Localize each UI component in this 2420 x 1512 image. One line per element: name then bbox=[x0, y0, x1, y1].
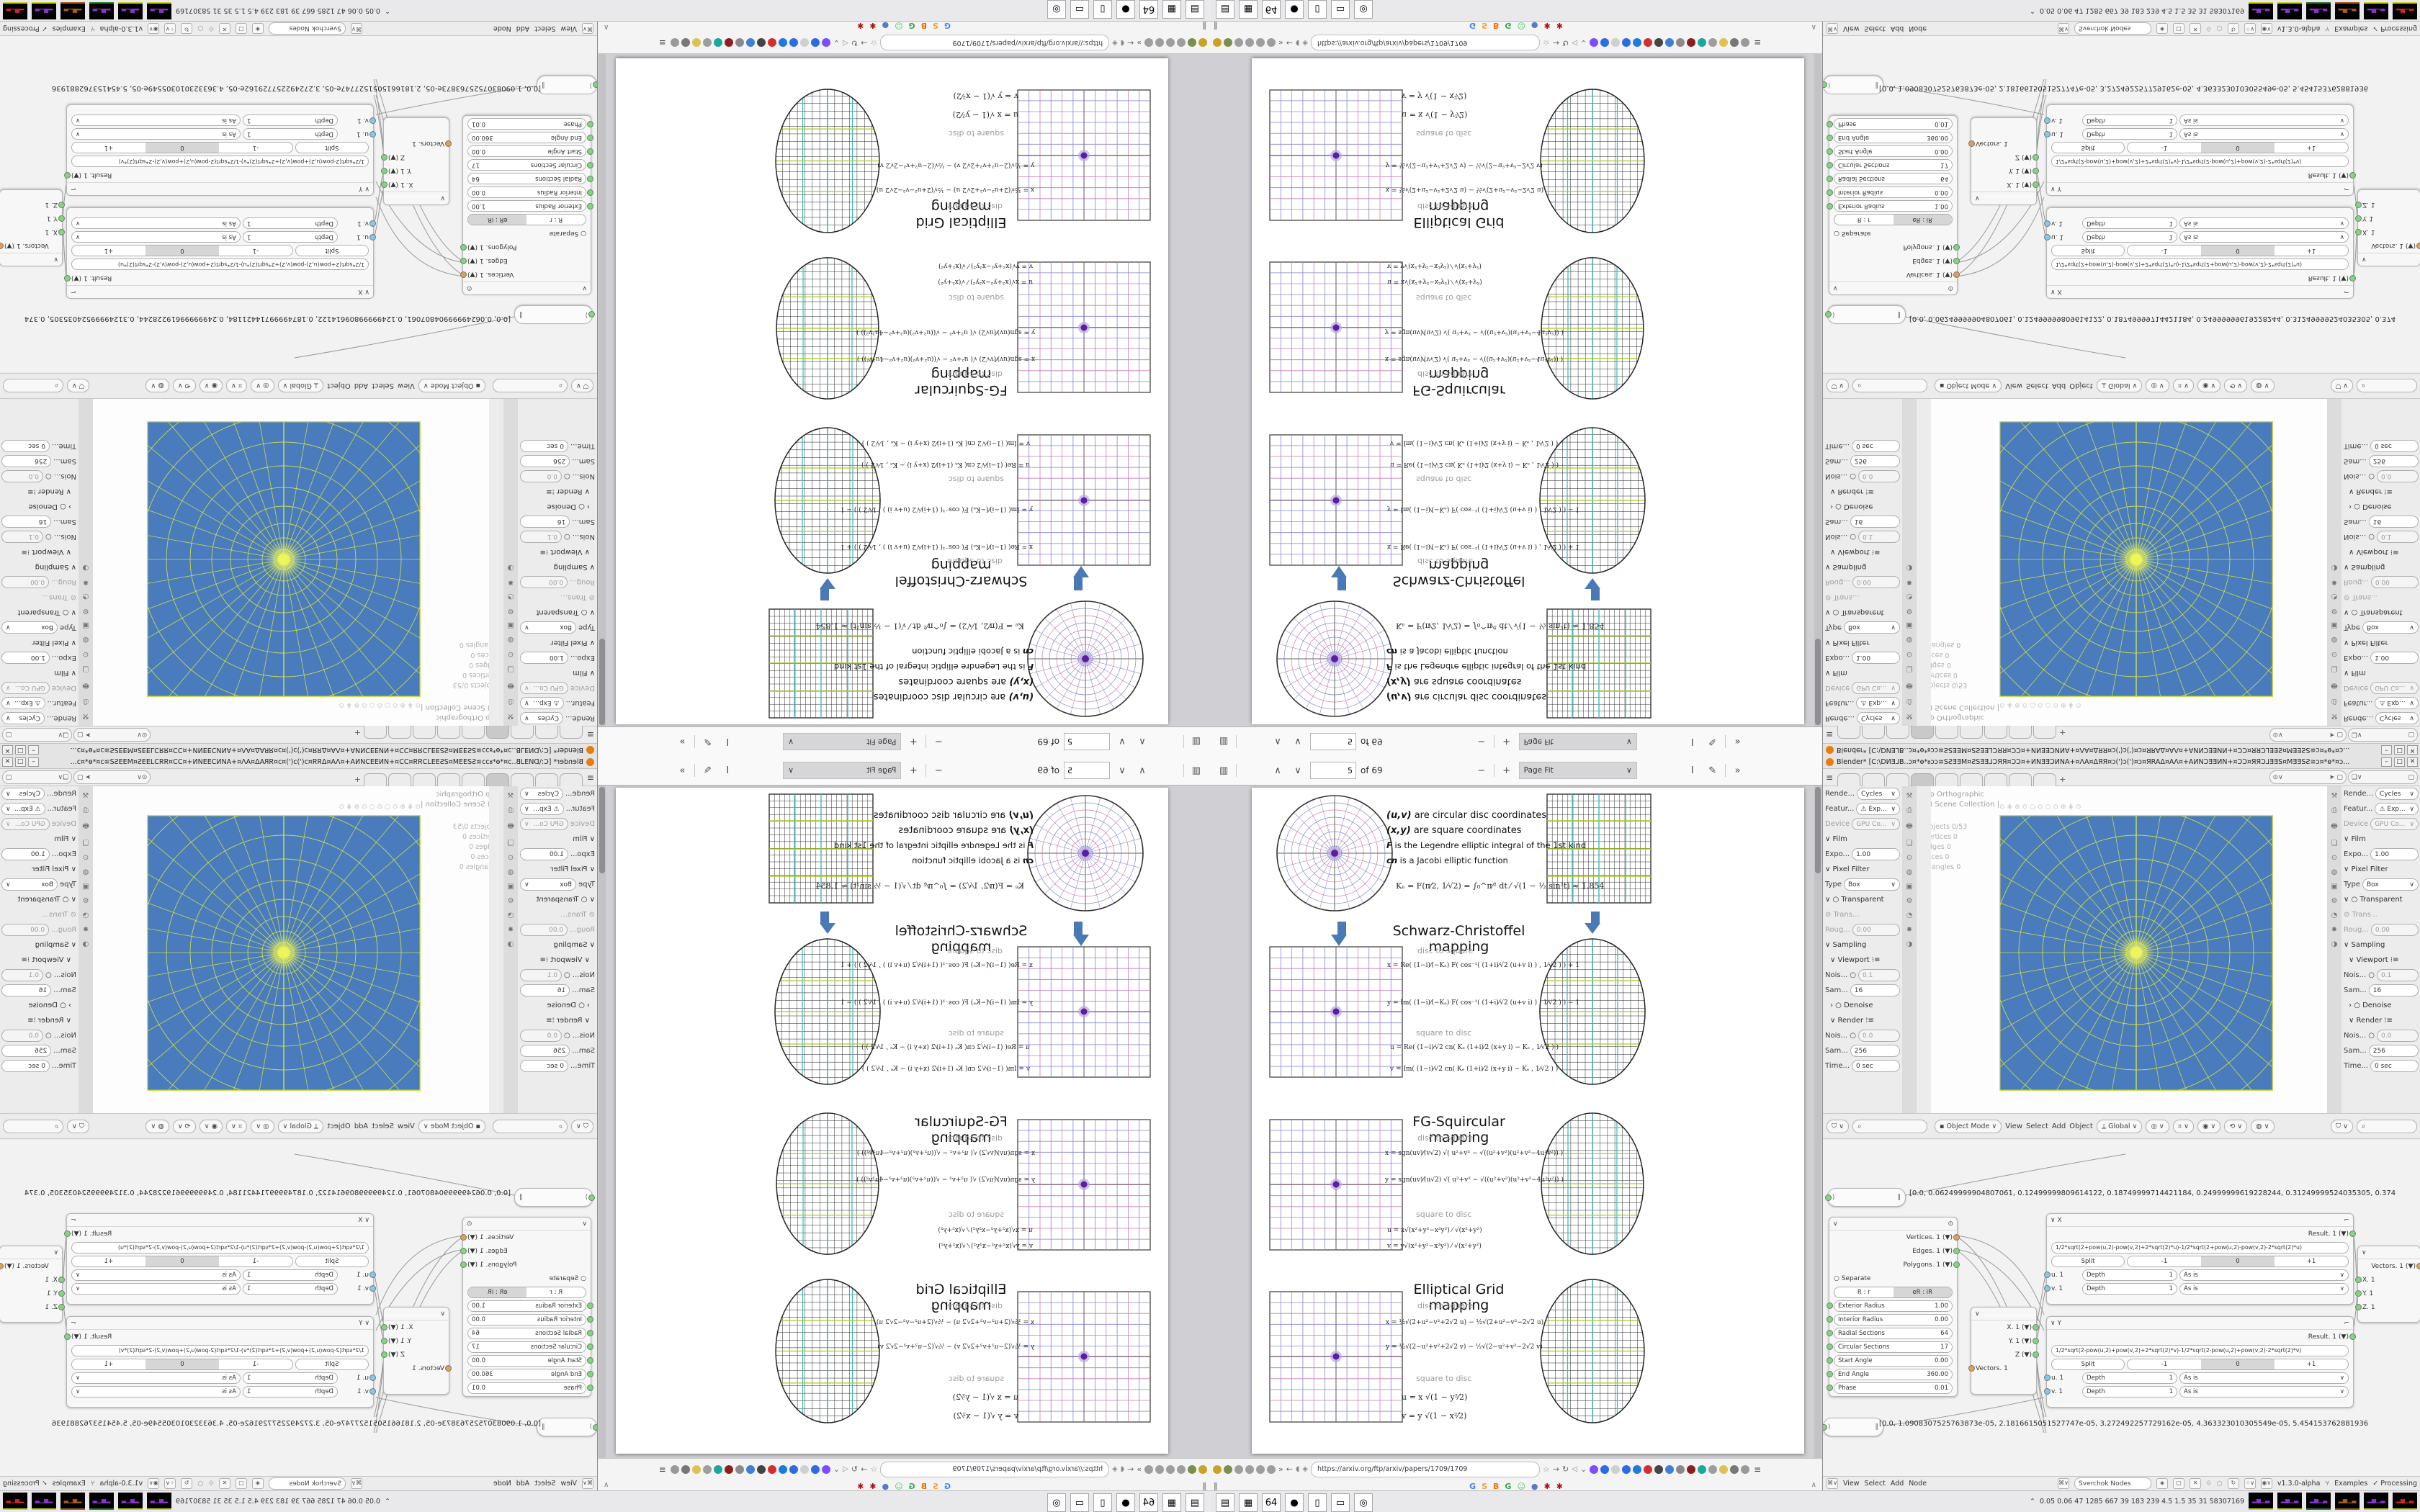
depth-field[interactable]: Depth1 bbox=[2082, 1269, 2177, 1281]
wrap-select[interactable]: As is∨ bbox=[71, 218, 241, 230]
feature-set-select[interactable]: ⚠ Exp...∨ bbox=[1, 803, 45, 815]
formula-input[interactable]: 1/2*sqrt(2+pow(u,2)-pow(v,2)+2*sqrt(2)*u… bbox=[2051, 1242, 2349, 1254]
taskbar-app-book[interactable]: ▦ bbox=[1162, 1493, 1181, 1512]
editor-type-button[interactable]: ⛉ ∨ bbox=[2331, 1120, 2353, 1133]
noise-threshold-field[interactable]: 0.1 bbox=[1, 969, 43, 981]
pdf-scrollbar[interactable] bbox=[599, 786, 606, 1458]
sverchok-search-input[interactable]: Sverchok Nodes bbox=[269, 1477, 346, 1490]
depth-field[interactable]: Depth1 bbox=[243, 1283, 338, 1295]
orientation-select[interactable]: ⟂ Global∨ bbox=[2097, 379, 2143, 393]
sphere-icon[interactable]: ◉∨ bbox=[2261, 1478, 2272, 1489]
stethoscope-node[interactable]: ⟩‖ bbox=[537, 1418, 597, 1436]
roughness-field[interactable]: 0.00 bbox=[1, 924, 49, 936]
viewlayer-selector[interactable]: ❏∨▢ bbox=[2348, 770, 2418, 784]
wrap-select[interactable]: As is∨ bbox=[2179, 1269, 2349, 1281]
wrench-icon[interactable]: ⌐ bbox=[2344, 289, 2349, 296]
roughness-field[interactable]: 0.00 bbox=[2371, 924, 2419, 936]
noise-threshold-field[interactable]: 0.0 bbox=[1, 470, 43, 482]
wrap-select[interactable]: As is∨ bbox=[71, 1386, 241, 1398]
add-workspace-button[interactable]: + bbox=[354, 729, 361, 738]
page-next-button[interactable]: ∨ bbox=[1114, 762, 1130, 778]
bookmark-icon[interactable]: G bbox=[1505, 1482, 1511, 1491]
drag-handle-icon[interactable]: ‖ bbox=[1203, 1481, 1207, 1490]
pixel-filter-header[interactable]: ∨ Pixel Filter bbox=[518, 635, 597, 650]
sampling-header[interactable]: ∨ Sampling bbox=[1823, 559, 1902, 575]
denoise-header[interactable]: › ○ Denoise bbox=[2341, 998, 2420, 1013]
taskbar-app-terminal[interactable]: ▤ bbox=[1186, 0, 1204, 19]
menu-select[interactable]: Select bbox=[534, 1480, 555, 1488]
collapse-icon[interactable]: ∧ bbox=[604, 1481, 609, 1489]
back-icon[interactable]: ← bbox=[1286, 1464, 1293, 1474]
menu-select[interactable]: Select bbox=[534, 24, 555, 32]
radial-sections-field[interactable]: Radial Sections64 bbox=[1834, 1328, 1953, 1339]
start-angle-field[interactable]: Start Angle0.00 bbox=[467, 146, 586, 158]
taskbar-app-book[interactable]: ▦ bbox=[1239, 1493, 1258, 1512]
toolbar-more-button[interactable]: » bbox=[674, 734, 690, 750]
workspace-tab-active[interactable] bbox=[1911, 726, 1934, 739]
page-number-input[interactable] bbox=[1310, 733, 1356, 750]
zoom-in-button[interactable]: + bbox=[905, 762, 921, 778]
split-button[interactable]: Split bbox=[2051, 1256, 2125, 1267]
menu-view[interactable]: View bbox=[560, 1480, 577, 1488]
time-limit-field[interactable]: 0 sec bbox=[1, 440, 50, 452]
bookmark-icon[interactable]: S bbox=[933, 22, 938, 31]
workspace-tab[interactable] bbox=[1886, 726, 1909, 739]
proportional-edit-toggle[interactable]: ◉ ∨ bbox=[200, 1120, 223, 1133]
stethoscope-node[interactable]: ⟩‖ bbox=[1827, 305, 1906, 324]
workspace-tab[interactable] bbox=[364, 773, 387, 786]
transparent-header[interactable]: ∨ ○ Transparent bbox=[518, 892, 597, 907]
sverchok-search-input[interactable]: Sverchok Nodes bbox=[2074, 22, 2151, 35]
text-select-tool[interactable]: I bbox=[1685, 762, 1700, 778]
film-section-header[interactable]: ∨ Film bbox=[2341, 832, 2420, 847]
menu-object[interactable]: Object bbox=[2069, 382, 2093, 390]
workspace-tab[interactable] bbox=[1862, 773, 1885, 786]
snap-toggle[interactable]: ◎ ∨ bbox=[2146, 379, 2169, 393]
interior-radius-field[interactable]: Interior Radius0.00 bbox=[467, 187, 586, 199]
blender-titlebar[interactable]: Blender* [C:\DИƎ⅃B..ɔ¤*ɵ*ᴕɔɔ≅SƧƎƎM¤ƧSƎƎ⅃… bbox=[0, 756, 597, 769]
bookmark-icon[interactable]: ✱ bbox=[869, 1482, 876, 1491]
download-icon[interactable]: ⌄ bbox=[833, 38, 840, 48]
roughness-field[interactable]: 0.00 bbox=[520, 924, 568, 936]
formula-node-x[interactable]: ∨ X⌐ Result. 1(▼) 1/2*sqrt(2+pow(u,2)-po… bbox=[2046, 207, 2354, 299]
exposure-field[interactable]: 1.00 bbox=[520, 652, 568, 664]
split-button[interactable]: Split bbox=[2051, 1359, 2125, 1370]
bookmark-icon[interactable]: ✱ bbox=[857, 22, 864, 31]
shield-icon[interactable]: ◖ bbox=[1121, 39, 1124, 47]
split-button[interactable]: Split bbox=[295, 246, 369, 257]
sidebar-toggle-icon[interactable]: ▥ bbox=[1188, 762, 1204, 778]
taskbar-app-book[interactable]: ▦ bbox=[1239, 0, 1258, 19]
editor-type-button[interactable]: ⛉ ∨ bbox=[2331, 379, 2353, 393]
viewport-sampling-header[interactable]: ∨ Viewport ⁝≡ bbox=[0, 544, 79, 559]
transparent-header[interactable]: ∨ ○ Transparent bbox=[518, 605, 597, 620]
viewport-3d[interactable]: Top Orthographic (2) Scene Collection | … bbox=[93, 399, 489, 726]
node-settings-icon[interactable]: ⊙ bbox=[1948, 285, 1953, 292]
workspace-tab[interactable] bbox=[535, 773, 558, 786]
page-prev-button[interactable]: ∧ bbox=[1270, 762, 1286, 778]
menu-add[interactable]: Add bbox=[516, 24, 529, 32]
wrap-select[interactable]: As is∨ bbox=[2179, 1372, 2349, 1384]
download-icon[interactable]: ⌄ bbox=[1580, 38, 1587, 48]
formula-node-y[interactable]: ∨ Y⌐ Result. 1(▼) 1/2*sqrt(2-pow(u,2)+po… bbox=[2046, 1316, 2354, 1408]
workspace-tab[interactable] bbox=[1935, 773, 1958, 786]
mode-segment[interactable]: R : reR : iR bbox=[467, 215, 586, 226]
taskbar-app-emulator[interactable]: 64 bbox=[1262, 1493, 1281, 1512]
workspace-tab[interactable] bbox=[511, 773, 534, 786]
denoise-header[interactable]: › ○ Denoise bbox=[1823, 499, 1902, 514]
formula-input[interactable]: 1/2*sqrt(2-pow(u,2)+pow(v,2)+2*sqrt(2)*v… bbox=[2051, 1345, 2349, 1356]
vector-in-node[interactable]: ∨ Vectors. 1(▼) X. 1 Y. 1 Z. 1 bbox=[2357, 189, 2420, 266]
roughness-field[interactable]: 0.00 bbox=[2371, 576, 2419, 588]
magnet-toggle[interactable]: ⌗ ∨ bbox=[2173, 379, 2194, 393]
hamburger-icon[interactable]: ≡ bbox=[1826, 730, 1833, 740]
bookmark-icon[interactable]: ☺ bbox=[1517, 22, 1525, 31]
maximize-button[interactable]: □ bbox=[15, 757, 26, 767]
speaker-icon[interactable]: ◁ bbox=[843, 1465, 848, 1473]
overlays-toggle[interactable]: ◍ ∨ bbox=[2251, 1120, 2274, 1133]
render-sampling-header[interactable]: ∨ Render ⁝≡ bbox=[2341, 1013, 2420, 1028]
ring-node[interactable]: ∨⊙ Vertices. 1(▼) Edges. 1(▼) Polygons. … bbox=[462, 1217, 591, 1397]
exterior-radius-field[interactable]: Exterior Radius1.00 bbox=[1834, 1300, 1953, 1312]
wrench-icon[interactable]: ⌐ bbox=[2344, 1320, 2349, 1327]
taskbar-app-ide[interactable]: ▭ bbox=[1331, 0, 1350, 19]
bookmark-icon[interactable]: G bbox=[1505, 22, 1511, 31]
magnet-toggle[interactable]: ⌗ ∨ bbox=[226, 379, 247, 393]
sampling-header[interactable]: ∨ Sampling bbox=[2341, 559, 2420, 575]
denoise-header[interactable]: › ○ Denoise bbox=[0, 998, 79, 1013]
collapse-icon[interactable]: ∧ bbox=[1811, 23, 1816, 31]
phase-field[interactable]: Phase0.01 bbox=[1834, 1382, 1953, 1394]
orientation-select[interactable]: ⟂ Global∨ bbox=[2097, 1120, 2143, 1133]
sampling-header[interactable]: ∨ Sampling bbox=[0, 937, 79, 953]
snap-toggle[interactable]: ◎ ∨ bbox=[251, 379, 274, 393]
viewlayer-selector[interactable]: ❏∨▢ bbox=[2, 770, 72, 784]
drag-handle-icon[interactable]: ‖ bbox=[1214, 1481, 1218, 1490]
time-limit-field[interactable]: 0 sec bbox=[520, 440, 568, 452]
hamburger-icon[interactable]: ≡ bbox=[1826, 773, 1833, 783]
close-icon[interactable]: ✕ bbox=[2190, 23, 2201, 34]
menu-node[interactable]: Node bbox=[493, 24, 511, 32]
workspace-tab[interactable] bbox=[511, 726, 534, 739]
sampling-header[interactable]: ∨ Sampling bbox=[1823, 937, 1902, 953]
wrap-select[interactable]: As is∨ bbox=[2179, 232, 2349, 243]
vector-in-node[interactable]: ∨ Vectors. 1(▼) X. 1 Y. 1 Z. 1 bbox=[2357, 1246, 2420, 1323]
menu-select[interactable]: Select bbox=[2026, 1122, 2048, 1130]
render-sampling-header[interactable]: ∨ Render ⁝≡ bbox=[0, 484, 79, 499]
vector-out-node[interactable]: ∨ X. 1(▼) Y. 1(▼) Z(▼) Vectors. 1 bbox=[1971, 1307, 2037, 1395]
pixel-filter-header[interactable]: ∨ Pixel Filter bbox=[2341, 862, 2420, 877]
window-buttons[interactable]: – □ ✕ bbox=[2381, 745, 2418, 755]
depth-field[interactable]: Depth1 bbox=[2082, 218, 2177, 230]
zoom-out-button[interactable]: − bbox=[931, 734, 946, 750]
shield-icon[interactable]: ◈ bbox=[2156, 1478, 2168, 1489]
render-samples-field[interactable]: 256 bbox=[2369, 1045, 2419, 1057]
taskbar-app-notepad[interactable]: ▯ bbox=[1093, 0, 1112, 19]
minimize-button[interactable]: – bbox=[2381, 745, 2392, 755]
render-engine-select[interactable]: Cycles∨ bbox=[520, 712, 563, 724]
pixel-filter-header[interactable]: ∨ Pixel Filter bbox=[0, 862, 79, 877]
formula-input[interactable]: 1/2*sqrt(2+pow(u,2)-pow(v,2)+2*sqrt(2)*u… bbox=[71, 259, 369, 271]
workspace-tab[interactable] bbox=[2033, 773, 2056, 786]
minimize-button[interactable]: – bbox=[2381, 757, 2392, 767]
url-field[interactable]: https://arxiv.org/ftp/arxiv/papers/1709/… bbox=[1311, 1462, 1540, 1477]
sverchok-node-editor[interactable]: ⟩‖ [0.0, 0.06249999904807061, 0.12499999… bbox=[0, 1140, 597, 1476]
device-select[interactable]: GPU Co...∨ bbox=[1, 818, 50, 830]
taskbar-app-firefox[interactable]: ● bbox=[1116, 0, 1135, 19]
wrap-select[interactable]: As is∨ bbox=[2179, 129, 2349, 140]
exterior-radius-field[interactable]: Exterior Radius1.00 bbox=[1834, 201, 1953, 212]
blender-titlebar[interactable]: Blender* [C:\DИƎ⅃B..ɔ¤*ɵ*ᴕɔɔ≅SƧƎƎM¤ƧSƎƎ⅃… bbox=[1823, 743, 2420, 756]
viewport-samples-field[interactable]: 16 bbox=[2369, 516, 2419, 528]
shield-icon[interactable]: ◈ bbox=[2156, 23, 2168, 34]
render-samples-field[interactable]: 256 bbox=[2369, 455, 2419, 467]
split-button[interactable]: Split bbox=[295, 1359, 369, 1370]
bookmark-star-icon[interactable]: ☆ bbox=[870, 1464, 877, 1474]
close-button[interactable]: ✕ bbox=[2, 745, 13, 755]
roughness-field[interactable]: 0.00 bbox=[1852, 576, 1900, 588]
shield-icon[interactable]: ◖ bbox=[1296, 39, 1299, 47]
interior-radius-field[interactable]: Interior Radius0.00 bbox=[467, 1314, 586, 1326]
scene-selector[interactable]: ⊙∨➤▢ bbox=[2269, 728, 2347, 742]
editor-type-button[interactable]: ⛉ ∨ bbox=[1827, 1120, 1849, 1133]
film-section-header[interactable]: ∨ Film bbox=[2341, 665, 2420, 680]
depth-field[interactable]: Depth1 bbox=[243, 232, 338, 243]
grid-icon[interactable]: ⁘∨ bbox=[164, 23, 176, 34]
window-buttons[interactable]: – □ ✕ bbox=[2381, 757, 2418, 767]
viewport-sampling-header[interactable]: ∨ Viewport ⁝≡ bbox=[518, 953, 597, 968]
bookmark-icon[interactable]: ● bbox=[882, 1482, 889, 1491]
extension-icons-right[interactable] bbox=[1590, 1465, 1749, 1474]
transparent-header[interactable]: ∨ ○ Transparent bbox=[1823, 605, 1902, 620]
draw-tool[interactable]: ✎ bbox=[699, 734, 715, 750]
taskbar-app-book[interactable]: ▦ bbox=[1162, 0, 1181, 19]
copy-icon[interactable]: ▢ bbox=[2408, 732, 2414, 739]
close-icon[interactable]: ✕ bbox=[219, 1478, 230, 1489]
extension-icons-right[interactable] bbox=[671, 39, 830, 48]
properties-tab-strip[interactable]: ⚒⎙🖶❏⊙◍▣⚙◔✸◑ bbox=[1902, 786, 1917, 1113]
render-sampling-header[interactable]: ∨ Render ⁝≡ bbox=[518, 484, 597, 499]
taskbar-app-ide[interactable]: ▭ bbox=[1331, 1493, 1350, 1512]
bookmark-icon[interactable]: ☺ bbox=[895, 1482, 902, 1491]
vector-out-node[interactable]: ∨ X. 1(▼) Y. 1(▼) Z(▼) Vectors. 1 bbox=[383, 1307, 449, 1395]
film-section-header[interactable]: ∨ Film bbox=[1823, 665, 1902, 680]
page-prev-button[interactable]: ∧ bbox=[1134, 734, 1150, 750]
sampling-header[interactable]: ∨ Sampling bbox=[2341, 937, 2420, 953]
denoise-header[interactable]: › ○ Denoise bbox=[0, 499, 79, 514]
radial-sections-field[interactable]: Radial Sections64 bbox=[467, 174, 586, 185]
wrap-select[interactable]: As is∨ bbox=[71, 232, 241, 243]
noise-threshold-field[interactable]: 0.1 bbox=[1, 531, 43, 543]
sphere-icon[interactable]: ◉∨ bbox=[148, 1478, 159, 1489]
back-icon[interactable]: ← bbox=[1127, 38, 1134, 48]
bookmark-icon[interactable]: ✱ bbox=[1556, 22, 1563, 31]
roughness-field[interactable]: 0.00 bbox=[520, 576, 568, 588]
stethoscope-node[interactable]: ⟩‖ bbox=[537, 76, 597, 94]
wrap-select[interactable]: As is∨ bbox=[2179, 218, 2349, 230]
search-input[interactable]: ⌕ bbox=[493, 379, 568, 393]
workspace-tab[interactable] bbox=[437, 773, 460, 786]
examples-menu[interactable]: Examples bbox=[2334, 1480, 2367, 1488]
film-section-header[interactable]: ∨ Film bbox=[518, 665, 597, 680]
hamburger-icon[interactable]: ≡ bbox=[587, 773, 594, 783]
collapse-icon[interactable]: ∧ bbox=[1811, 1481, 1816, 1489]
pdf-scrollbar[interactable] bbox=[1814, 54, 1821, 726]
bookmark-icon[interactable]: ✱ bbox=[869, 22, 876, 31]
back-icon[interactable]: ← bbox=[1127, 1464, 1134, 1474]
url-field[interactable]: https://arxiv.org/ftp/arxiv/papers/1709/… bbox=[880, 35, 1109, 51]
formula-node-y[interactable]: ∨ Y⌐ Result. 1(▼) 1/2*sqrt(2-pow(u,2)+po… bbox=[66, 104, 374, 196]
workspace-tab[interactable] bbox=[1960, 726, 1983, 739]
sverchok-search-input[interactable]: Sverchok Nodes bbox=[269, 22, 346, 35]
exposure-field[interactable]: 1.00 bbox=[520, 848, 568, 860]
taskbar-app-blender[interactable]: ◎ bbox=[1354, 1493, 1373, 1512]
overlays-toggle[interactable]: ◍ ∨ bbox=[2251, 379, 2274, 393]
stethoscope-node[interactable]: ⟩‖ bbox=[514, 305, 593, 324]
bookmark-icon[interactable]: ✱ bbox=[1556, 1482, 1563, 1491]
workspace-tab-active[interactable] bbox=[1911, 773, 1934, 786]
mode-select[interactable]: ▪ Object Mode∨ bbox=[418, 1120, 485, 1133]
depth-field[interactable]: Depth1 bbox=[243, 115, 338, 127]
feature-set-select[interactable]: ⚠ Exp...∨ bbox=[2375, 697, 2419, 709]
workspace-tab-active[interactable] bbox=[486, 726, 509, 739]
page-next-button[interactable]: ∨ bbox=[1114, 734, 1130, 750]
formula-input[interactable]: 1/2*sqrt(2-pow(u,2)+pow(v,2)+2*sqrt(2)*v… bbox=[2051, 156, 2349, 168]
menu-view[interactable]: View bbox=[1843, 24, 1860, 32]
workspace-tab[interactable] bbox=[2033, 726, 2056, 739]
formula-node-x[interactable]: ∨ X⌐ Result. 1(▼) 1/2*sqrt(2+pow(u,2)-po… bbox=[66, 1213, 374, 1305]
taskbar-app-terminal[interactable]: ▤ bbox=[1216, 0, 1234, 19]
bookmark-icon[interactable]: G bbox=[909, 22, 915, 31]
start-angle-field[interactable]: Start Angle0.00 bbox=[467, 1355, 586, 1367]
viewport-sampling-header[interactable]: ∨ Viewport ⁝≡ bbox=[1823, 953, 1902, 968]
sphere-icon[interactable]: ◉∨ bbox=[148, 23, 159, 34]
taskbar-app-notepad[interactable]: ▯ bbox=[1093, 1493, 1112, 1512]
speaker-icon[interactable]: ◁ bbox=[1572, 1465, 1577, 1473]
copy-icon[interactable]: ▢ bbox=[6, 774, 12, 781]
transparent-glass-toggle[interactable]: ⊘ Trans... bbox=[0, 907, 79, 922]
bookmark-icon[interactable]: ● bbox=[1531, 1482, 1538, 1491]
taskbar-app-blender[interactable]: ◎ bbox=[1047, 1493, 1066, 1512]
taskbar-app-emulator[interactable]: 64 bbox=[1262, 0, 1281, 19]
filter-type-select[interactable]: Box∨ bbox=[1, 621, 58, 634]
taskbar-app-firefox[interactable]: ● bbox=[1116, 1493, 1135, 1512]
workspace-tab[interactable] bbox=[2009, 726, 2032, 739]
wrap-select[interactable]: As is∨ bbox=[71, 1283, 241, 1295]
formula-input[interactable]: 1/2*sqrt(2-pow(u,2)+pow(v,2)+2*sqrt(2)*v… bbox=[71, 1345, 369, 1356]
device-select[interactable]: GPU Co...∨ bbox=[1852, 818, 1900, 830]
blender-titlebar[interactable]: Blender* [C:\DИƎ⅃B..ɔ¤*ɵ*ᴕɔɔ≅SƧƎƎM¤ƧSƎƎ⅃… bbox=[0, 743, 597, 756]
close-button[interactable]: ✕ bbox=[2407, 745, 2418, 755]
zoom-in-button[interactable]: + bbox=[905, 734, 921, 750]
workspace-tab[interactable] bbox=[364, 726, 387, 739]
copy-icon[interactable]: ▢ bbox=[77, 774, 84, 781]
properties-tab-strip[interactable]: ⚒⎙🖶❏⊙◍▣⚙◔✸◑ bbox=[2327, 786, 2341, 1113]
noise-threshold-field[interactable]: 0.1 bbox=[1858, 531, 1900, 543]
axis-segment[interactable]: -10+1 bbox=[2127, 143, 2349, 154]
feature-set-select[interactable]: ⚠ Exp...∨ bbox=[1856, 697, 1900, 709]
toolbar-more-button[interactable]: » bbox=[674, 762, 690, 778]
denoise-header[interactable]: › ○ Denoise bbox=[518, 998, 597, 1013]
split-button[interactable]: Split bbox=[2051, 246, 2125, 257]
transparent-header[interactable]: ∨ ○ Transparent bbox=[2341, 605, 2420, 620]
bookmark-icon[interactable]: G bbox=[1469, 1482, 1476, 1491]
sverchok-node-editor[interactable]: ⟩‖ [0.0, 0.06249999904807061, 0.12499999… bbox=[0, 36, 597, 372]
workspace-tab[interactable] bbox=[388, 773, 411, 786]
drag-handle-icon[interactable]: ‖ bbox=[1203, 22, 1207, 31]
exposure-field[interactable]: 1.00 bbox=[1, 652, 50, 664]
bookmark-icon[interactable]: ● bbox=[882, 22, 889, 31]
formula-input[interactable]: 1/2*sqrt(2+pow(u,2)-pow(v,2)+2*sqrt(2)*u… bbox=[2051, 259, 2349, 271]
minimize-button[interactable]: – bbox=[28, 757, 39, 767]
workspace-tab[interactable] bbox=[437, 726, 460, 739]
toolbar-more-button[interactable]: » bbox=[1730, 762, 1746, 778]
noise-threshold-field[interactable]: 0.1 bbox=[1858, 969, 1900, 981]
render-sampling-header[interactable]: ∨ Render ⁝≡ bbox=[1823, 484, 1902, 499]
tree-select-icon[interactable]: ⌘∨ bbox=[351, 23, 362, 34]
vector-in-node[interactable]: ∨ Vectors. 1(▼) X. 1 Y. 1 Z. 1 bbox=[0, 189, 63, 266]
page-number-input[interactable] bbox=[1310, 762, 1356, 779]
tree-select-icon[interactable]: ⌘∨ bbox=[2058, 1478, 2069, 1489]
pin-icon[interactable]: ➤ bbox=[2329, 732, 2335, 739]
copy-icon[interactable]: ▢ bbox=[236, 23, 247, 34]
grid-icon[interactable]: ⁘∨ bbox=[164, 1478, 176, 1489]
axis-segment[interactable]: -10+1 bbox=[2127, 1359, 2349, 1370]
copy-icon[interactable]: ▢ bbox=[6, 732, 12, 739]
menu-object[interactable]: Object bbox=[2069, 1122, 2093, 1130]
pixel-filter-header[interactable]: ∨ Pixel Filter bbox=[1823, 862, 1902, 877]
reload-icon[interactable]: ↻ bbox=[851, 38, 858, 48]
sverchok-node-editor[interactable]: ⟩‖ [0.0, 0.06249999904807061, 0.12499999… bbox=[1823, 1140, 2420, 1476]
copy-icon[interactable]: ▢ bbox=[2173, 23, 2184, 34]
render-engine-select[interactable]: Cycles∨ bbox=[1, 788, 45, 800]
menu-add[interactable]: Add bbox=[2052, 1122, 2066, 1130]
search-input[interactable]: ⌕ bbox=[3, 379, 63, 393]
extension-icons-right[interactable] bbox=[1590, 39, 1749, 48]
exposure-field[interactable]: 1.00 bbox=[1852, 848, 1900, 860]
sampling-header[interactable]: ∨ Sampling bbox=[518, 937, 597, 953]
denoise-header[interactable]: › ○ Denoise bbox=[1823, 998, 1902, 1013]
render-samples-field[interactable]: 256 bbox=[1, 1045, 51, 1057]
page-next-button[interactable]: ∨ bbox=[1290, 734, 1306, 750]
sampling-header[interactable]: ∨ Sampling bbox=[518, 559, 597, 575]
menu-view[interactable]: View bbox=[560, 24, 577, 32]
depth-field[interactable]: Depth1 bbox=[2082, 1283, 2177, 1295]
transparent-glass-toggle[interactable]: ⊘ Trans... bbox=[2341, 907, 2420, 922]
gizmo-toggle[interactable]: ⟲ ∨ bbox=[173, 379, 196, 393]
editor-type-button[interactable]: ⛉ ∨ bbox=[571, 379, 593, 393]
properties-tab-strip[interactable]: ⚒⎙🖶❏⊙◍▣⚙◔✸◑ bbox=[1902, 399, 1917, 726]
render-engine-select[interactable]: Cycles∨ bbox=[1857, 712, 1900, 724]
render-samples-field[interactable]: 256 bbox=[520, 455, 570, 467]
circular-sections-field[interactable]: Circular Sections17 bbox=[467, 160, 586, 171]
filter-type-select[interactable]: Box∨ bbox=[1844, 878, 1900, 891]
circular-sections-field[interactable]: Circular Sections17 bbox=[1834, 1341, 1953, 1353]
viewport-samples-field[interactable]: 16 bbox=[2369, 984, 2419, 996]
draw-tool[interactable]: ✎ bbox=[1705, 762, 1721, 778]
snap-toggle[interactable]: ◎ ∨ bbox=[251, 1120, 274, 1133]
taskbar-app-ide[interactable]: ▭ bbox=[1070, 0, 1089, 19]
filter-type-select[interactable]: Box∨ bbox=[1, 878, 58, 891]
noise-threshold-field[interactable]: 0.0 bbox=[1858, 1030, 1900, 1042]
examples-menu[interactable]: Examples bbox=[2334, 24, 2367, 32]
proportional-edit-toggle[interactable]: ◉ ∨ bbox=[200, 379, 223, 393]
maximize-button[interactable]: □ bbox=[2394, 745, 2405, 755]
copy-icon[interactable]: ▢ bbox=[2408, 774, 2414, 781]
depth-field[interactable]: Depth1 bbox=[243, 218, 338, 230]
split-button[interactable]: Split bbox=[295, 1256, 369, 1267]
render-sampling-header[interactable]: ∨ Render ⁝≡ bbox=[518, 1013, 597, 1028]
